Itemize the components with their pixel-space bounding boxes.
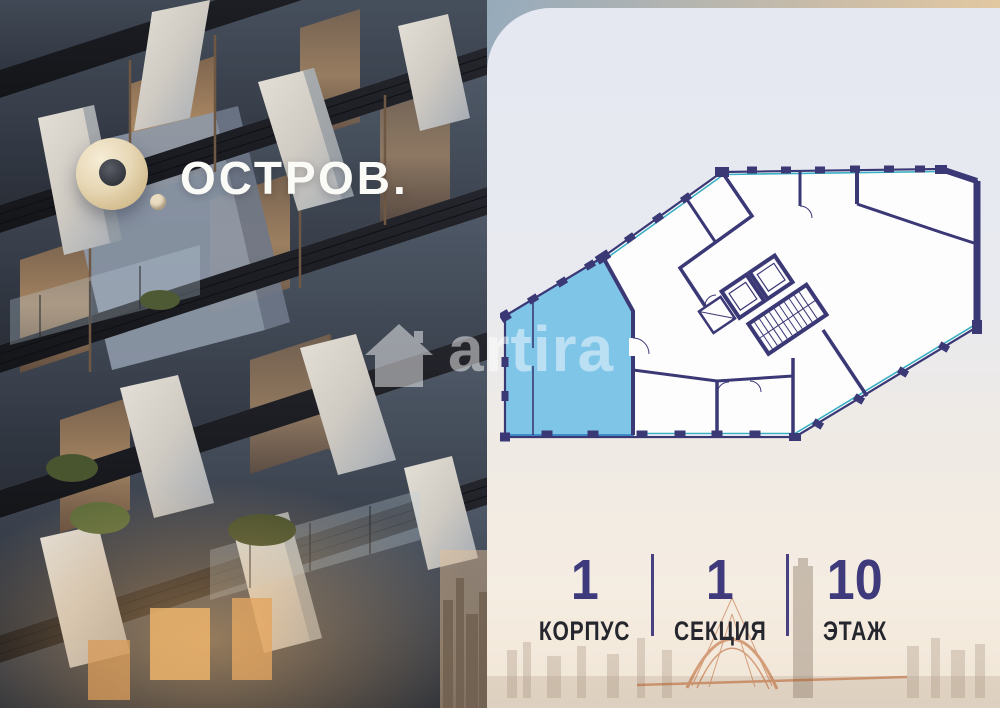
building-photo — [0, 0, 487, 708]
section-label: СЕКЦИЯ — [674, 616, 766, 647]
apartment-location-info: 1 КОРПУС 1 СЕКЦИЯ 10 ЭТАЖ — [519, 552, 929, 647]
korpus-value: 1 — [571, 552, 599, 609]
logo-dot — [150, 194, 166, 210]
logo-o-mark-icon — [76, 138, 148, 210]
korpus-label: КОРПУС — [539, 616, 630, 647]
section-value: 1 — [706, 552, 734, 609]
floor-label: ЭТАЖ — [823, 616, 887, 647]
floorplan-card: 1 КОРПУС 1 СЕКЦИЯ 10 ЭТАЖ — [487, 8, 1000, 708]
floor-plan — [500, 148, 982, 462]
listing-image: ОСТРОВ. — [0, 0, 1000, 708]
logo-o-hole — [99, 159, 126, 186]
brand-logo: ОСТРОВ. — [76, 138, 409, 210]
korpus-block: 1 КОРПУС — [519, 552, 651, 647]
brand-name: ОСТРОВ. — [180, 151, 409, 205]
section-block: 1 СЕКЦИЯ — [654, 552, 786, 647]
floor-block: 10 ЭТАЖ — [789, 552, 921, 647]
floor-value: 10 — [827, 552, 883, 609]
selected-apartment-highlight[interactable] — [505, 257, 633, 435]
